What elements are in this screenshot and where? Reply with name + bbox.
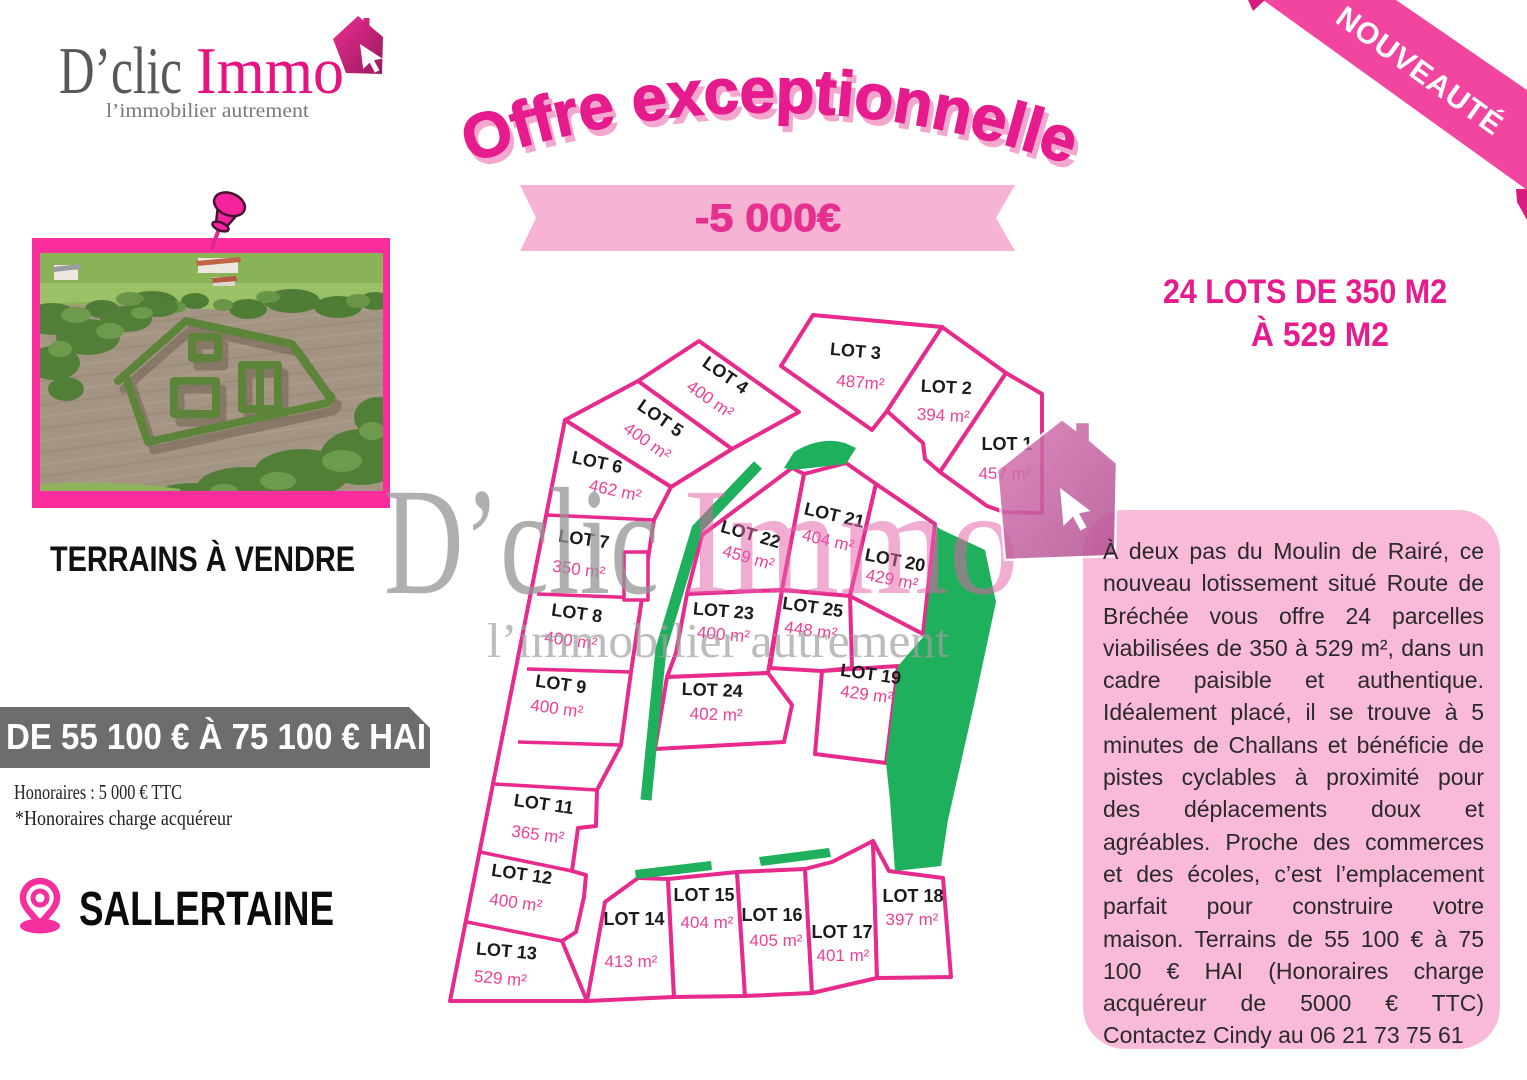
svg-text:LOT 8: LOT 8 bbox=[550, 600, 603, 627]
svg-text:529 m²: 529 m² bbox=[473, 967, 528, 991]
svg-text:LOT 16: LOT 16 bbox=[741, 905, 802, 925]
svg-text:404 m²: 404 m² bbox=[681, 913, 734, 932]
svg-text:Offre exceptionnelle: Offre exceptionnelle bbox=[453, 56, 1086, 177]
svg-text:401 m²: 401 m² bbox=[817, 946, 870, 965]
svg-text:400 m²: 400 m² bbox=[683, 377, 738, 423]
svg-text:397 m²: 397 m² bbox=[886, 910, 939, 929]
svg-text:LOT 2: LOT 2 bbox=[920, 376, 972, 399]
svg-text:*Honoraires charge acquéreur: *Honoraires charge acquéreur bbox=[15, 806, 232, 830]
svg-text:400 m²: 400 m² bbox=[529, 695, 584, 721]
svg-text:405 m²: 405 m² bbox=[750, 931, 803, 950]
svg-text:365 m²: 365 m² bbox=[510, 821, 565, 847]
svg-text:l’immobilier autrement: l’immobilier autrement bbox=[487, 613, 949, 668]
svg-text:LOT 7: LOT 7 bbox=[557, 526, 610, 553]
svg-text:Honoraires : 5 000 € TTC: Honoraires : 5 000 € TTC bbox=[14, 780, 182, 804]
svg-text:LOT 15: LOT 15 bbox=[673, 885, 734, 905]
svg-text:448 m²: 448 m² bbox=[783, 617, 838, 643]
svg-text:429 m²: 429 m² bbox=[839, 681, 894, 707]
svg-text:LOT 5: LOT 5 bbox=[634, 395, 687, 441]
svg-text:LOT 22: LOT 22 bbox=[719, 516, 783, 552]
svg-text:LOT 1: LOT 1 bbox=[981, 434, 1032, 454]
svg-text:LOT 17: LOT 17 bbox=[811, 922, 872, 942]
svg-text:LOT 18: LOT 18 bbox=[882, 886, 943, 906]
svg-text:SALLERTAINE: SALLERTAINE bbox=[79, 883, 334, 936]
svg-text:LOT 21: LOT 21 bbox=[802, 499, 866, 532]
svg-text:413 m²: 413 m² bbox=[605, 952, 658, 971]
svg-text:400 m²: 400 m² bbox=[543, 627, 598, 653]
svg-text:394 m²: 394 m² bbox=[916, 405, 970, 427]
svg-text:Offre exceptionnelle: Offre exceptionnelle bbox=[457, 62, 1090, 183]
svg-text:24 LOTS DE 350 M2: 24 LOTS DE 350 M2 bbox=[1163, 273, 1447, 311]
svg-text:LOT 20: LOT 20 bbox=[863, 544, 927, 575]
svg-text:LOT 14: LOT 14 bbox=[603, 909, 664, 929]
svg-text:LOT 19: LOT 19 bbox=[839, 660, 902, 688]
svg-text:Immo: Immo bbox=[196, 34, 344, 108]
svg-text:LOT 23: LOT 23 bbox=[692, 598, 755, 623]
svg-text:404 m²: 404 m² bbox=[800, 525, 856, 555]
svg-text:400 m²: 400 m² bbox=[620, 419, 675, 465]
svg-text:LOT 11: LOT 11 bbox=[513, 790, 575, 818]
svg-text:402 m²: 402 m² bbox=[689, 704, 743, 725]
svg-text:l’immobilier autrement: l’immobilier autrement bbox=[106, 100, 309, 122]
svg-text:459 m²: 459 m² bbox=[720, 541, 776, 574]
svg-text:400 m²: 400 m² bbox=[488, 889, 543, 915]
svg-text:LOT 25: LOT 25 bbox=[781, 593, 844, 621]
svg-text:429 m²: 429 m² bbox=[864, 565, 920, 594]
svg-text:LOT 13: LOT 13 bbox=[475, 938, 538, 963]
svg-text:NOUVEAUTÉ: NOUVEAUTÉ bbox=[1330, 0, 1510, 142]
svg-text:462 m²: 462 m² bbox=[587, 476, 643, 506]
svg-text:D’clic: D’clic bbox=[59, 34, 182, 108]
svg-text:DE 55 100 € À 75 100 € HAI: DE 55 100 € À 75 100 € HAI bbox=[6, 716, 426, 757]
svg-text:-5 000€: -5 000€ bbox=[695, 197, 841, 240]
svg-text:400 m²: 400 m² bbox=[696, 623, 751, 647]
svg-text:457 m²: 457 m² bbox=[979, 464, 1032, 483]
svg-text:LOT 6: LOT 6 bbox=[570, 447, 624, 477]
svg-text:LOT 9: LOT 9 bbox=[534, 671, 587, 698]
svg-text:À 529 M2: À 529 M2 bbox=[1251, 316, 1389, 354]
svg-text:Immo: Immo bbox=[683, 458, 1019, 627]
svg-text:487m²: 487m² bbox=[836, 371, 886, 394]
svg-text:LOT 4: LOT 4 bbox=[699, 352, 752, 398]
svg-text:TERRAINS À VENDRE: TERRAINS À VENDRE bbox=[50, 539, 355, 579]
svg-text:LOT 3: LOT 3 bbox=[829, 339, 882, 363]
svg-text:LOT 24: LOT 24 bbox=[681, 679, 743, 701]
svg-text:D’clic: D’clic bbox=[384, 458, 659, 627]
svg-text:LOT 12: LOT 12 bbox=[490, 860, 553, 888]
svg-text:350 m²: 350 m² bbox=[551, 556, 606, 582]
